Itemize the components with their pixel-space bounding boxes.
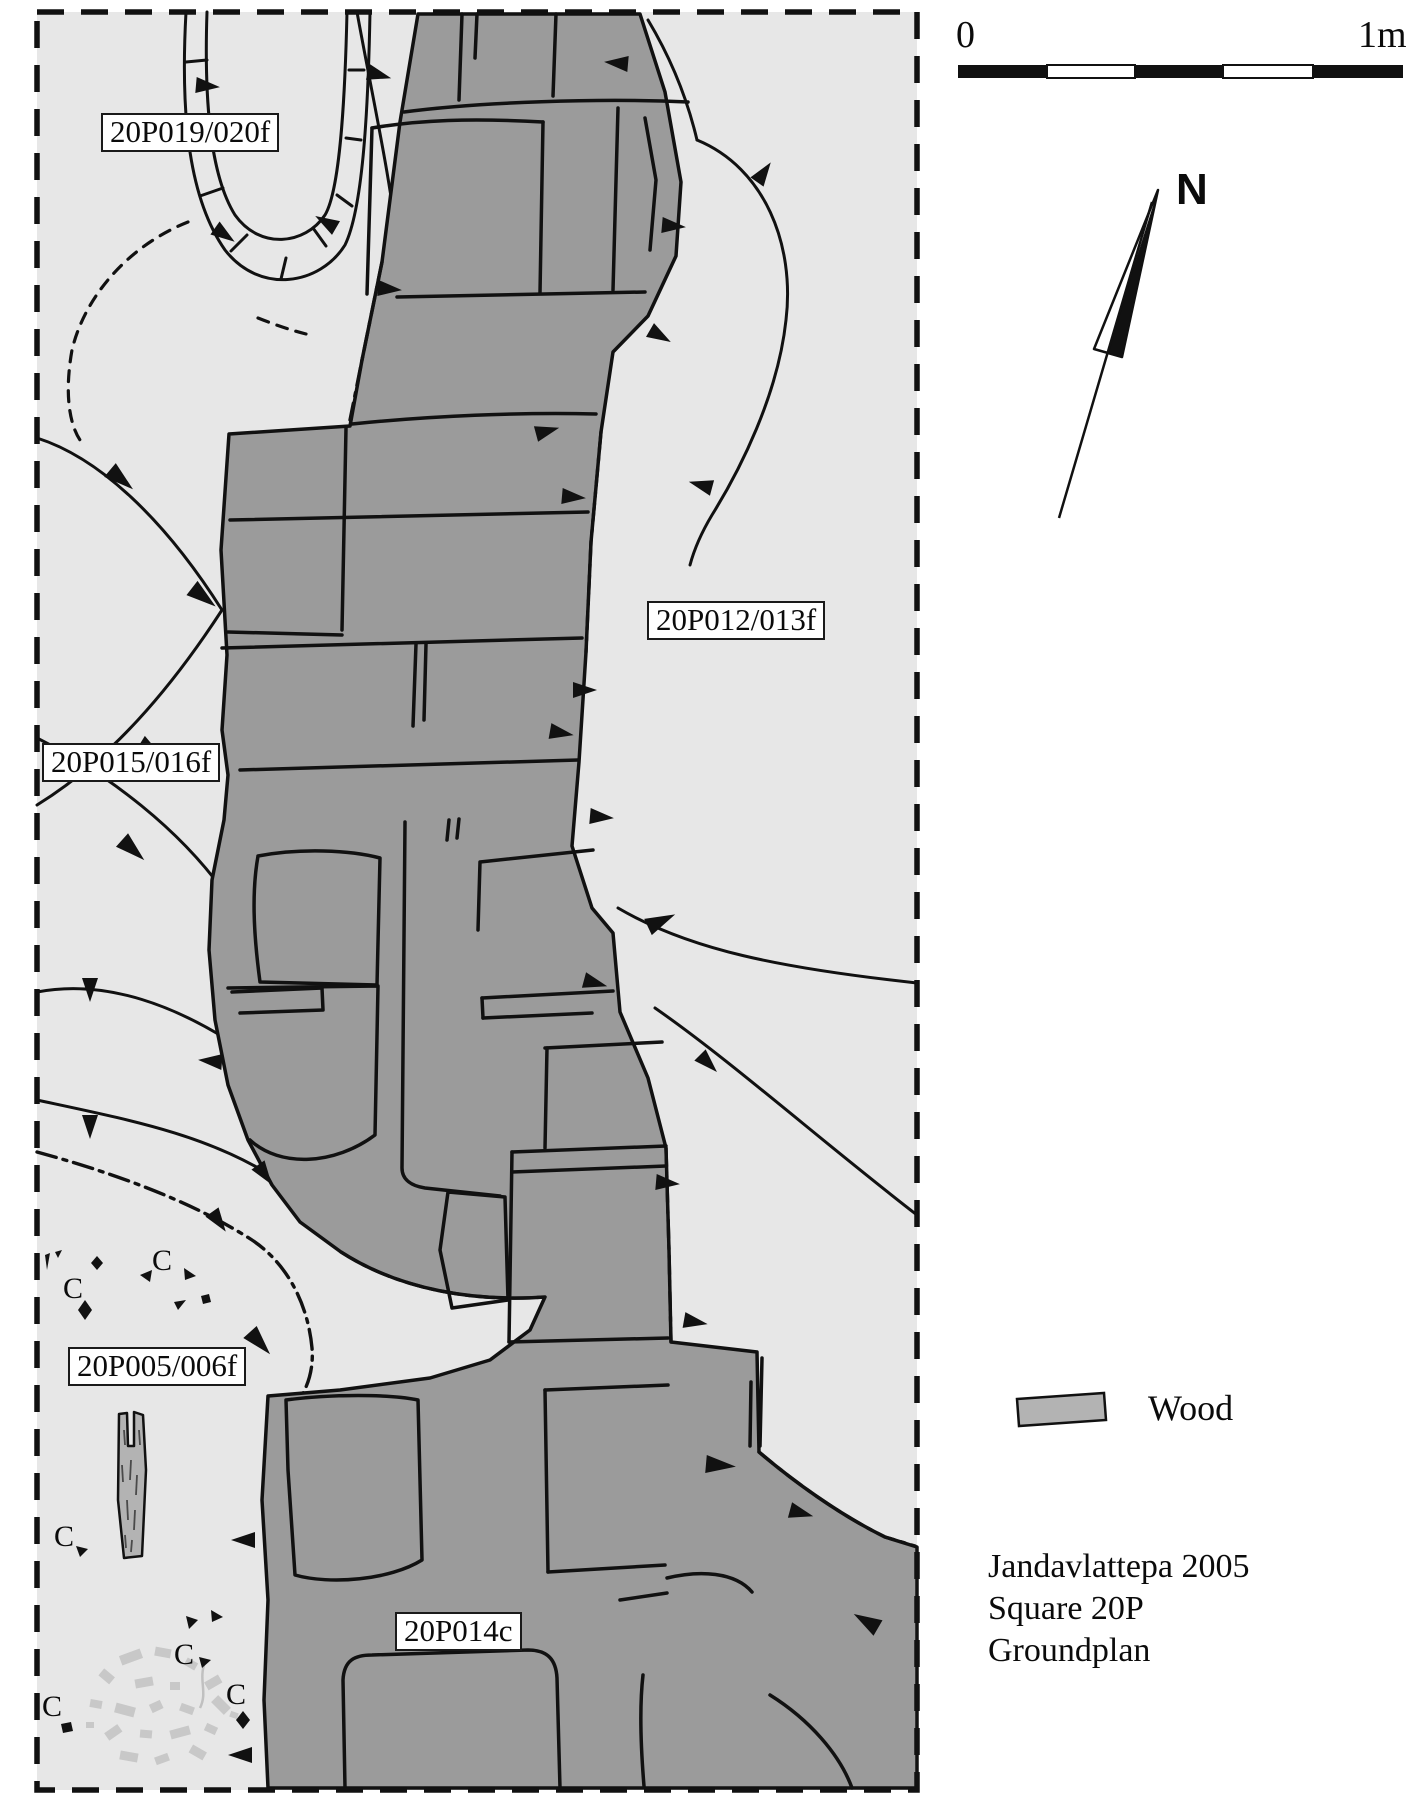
groundplan-page: { "plan": { "feature_labels": [ { "id": …: [0, 0, 1410, 1798]
scale-zero-label: 0: [956, 16, 975, 54]
caption-square: Square 20P: [988, 1588, 1250, 1630]
charcoal-mark-label-5: C: [226, 1680, 246, 1710]
charcoal-mark-label-2: C: [63, 1274, 83, 1304]
feature-label-20P012-013f: 20P012/013f: [647, 601, 825, 640]
feature-label-20P005-006f: 20P005/006f: [68, 1347, 246, 1386]
charcoal-mark-label-3: C: [54, 1522, 74, 1552]
legend-wood-label: Wood: [1148, 1390, 1233, 1426]
legend-wood-swatch: [1017, 1393, 1106, 1426]
charcoal-mark-label-1: C: [152, 1246, 172, 1276]
feature-label-20P015-016f: 20P015/016f: [42, 743, 220, 782]
excavation-plan-drawing: [0, 0, 1410, 1798]
caption-block: Jandavlattepa 2005 Square 20P Groundplan: [988, 1546, 1250, 1672]
feature-label-20P014c: 20P014c: [395, 1612, 522, 1651]
feature-label-20P019-020f: 20P019/020f: [101, 113, 279, 152]
caption-site-year: Jandavlattepa 2005: [988, 1546, 1250, 1588]
scale-end-label: 1m: [1358, 16, 1407, 54]
north-arrow: [1059, 190, 1158, 518]
charcoal-mark-label-4: C: [174, 1640, 194, 1670]
caption-plan-type: Groundplan: [988, 1630, 1250, 1672]
north-label: N: [1176, 168, 1208, 212]
charcoal-mark-label-6: C: [42, 1692, 62, 1722]
scale-bar: [958, 65, 1403, 78]
